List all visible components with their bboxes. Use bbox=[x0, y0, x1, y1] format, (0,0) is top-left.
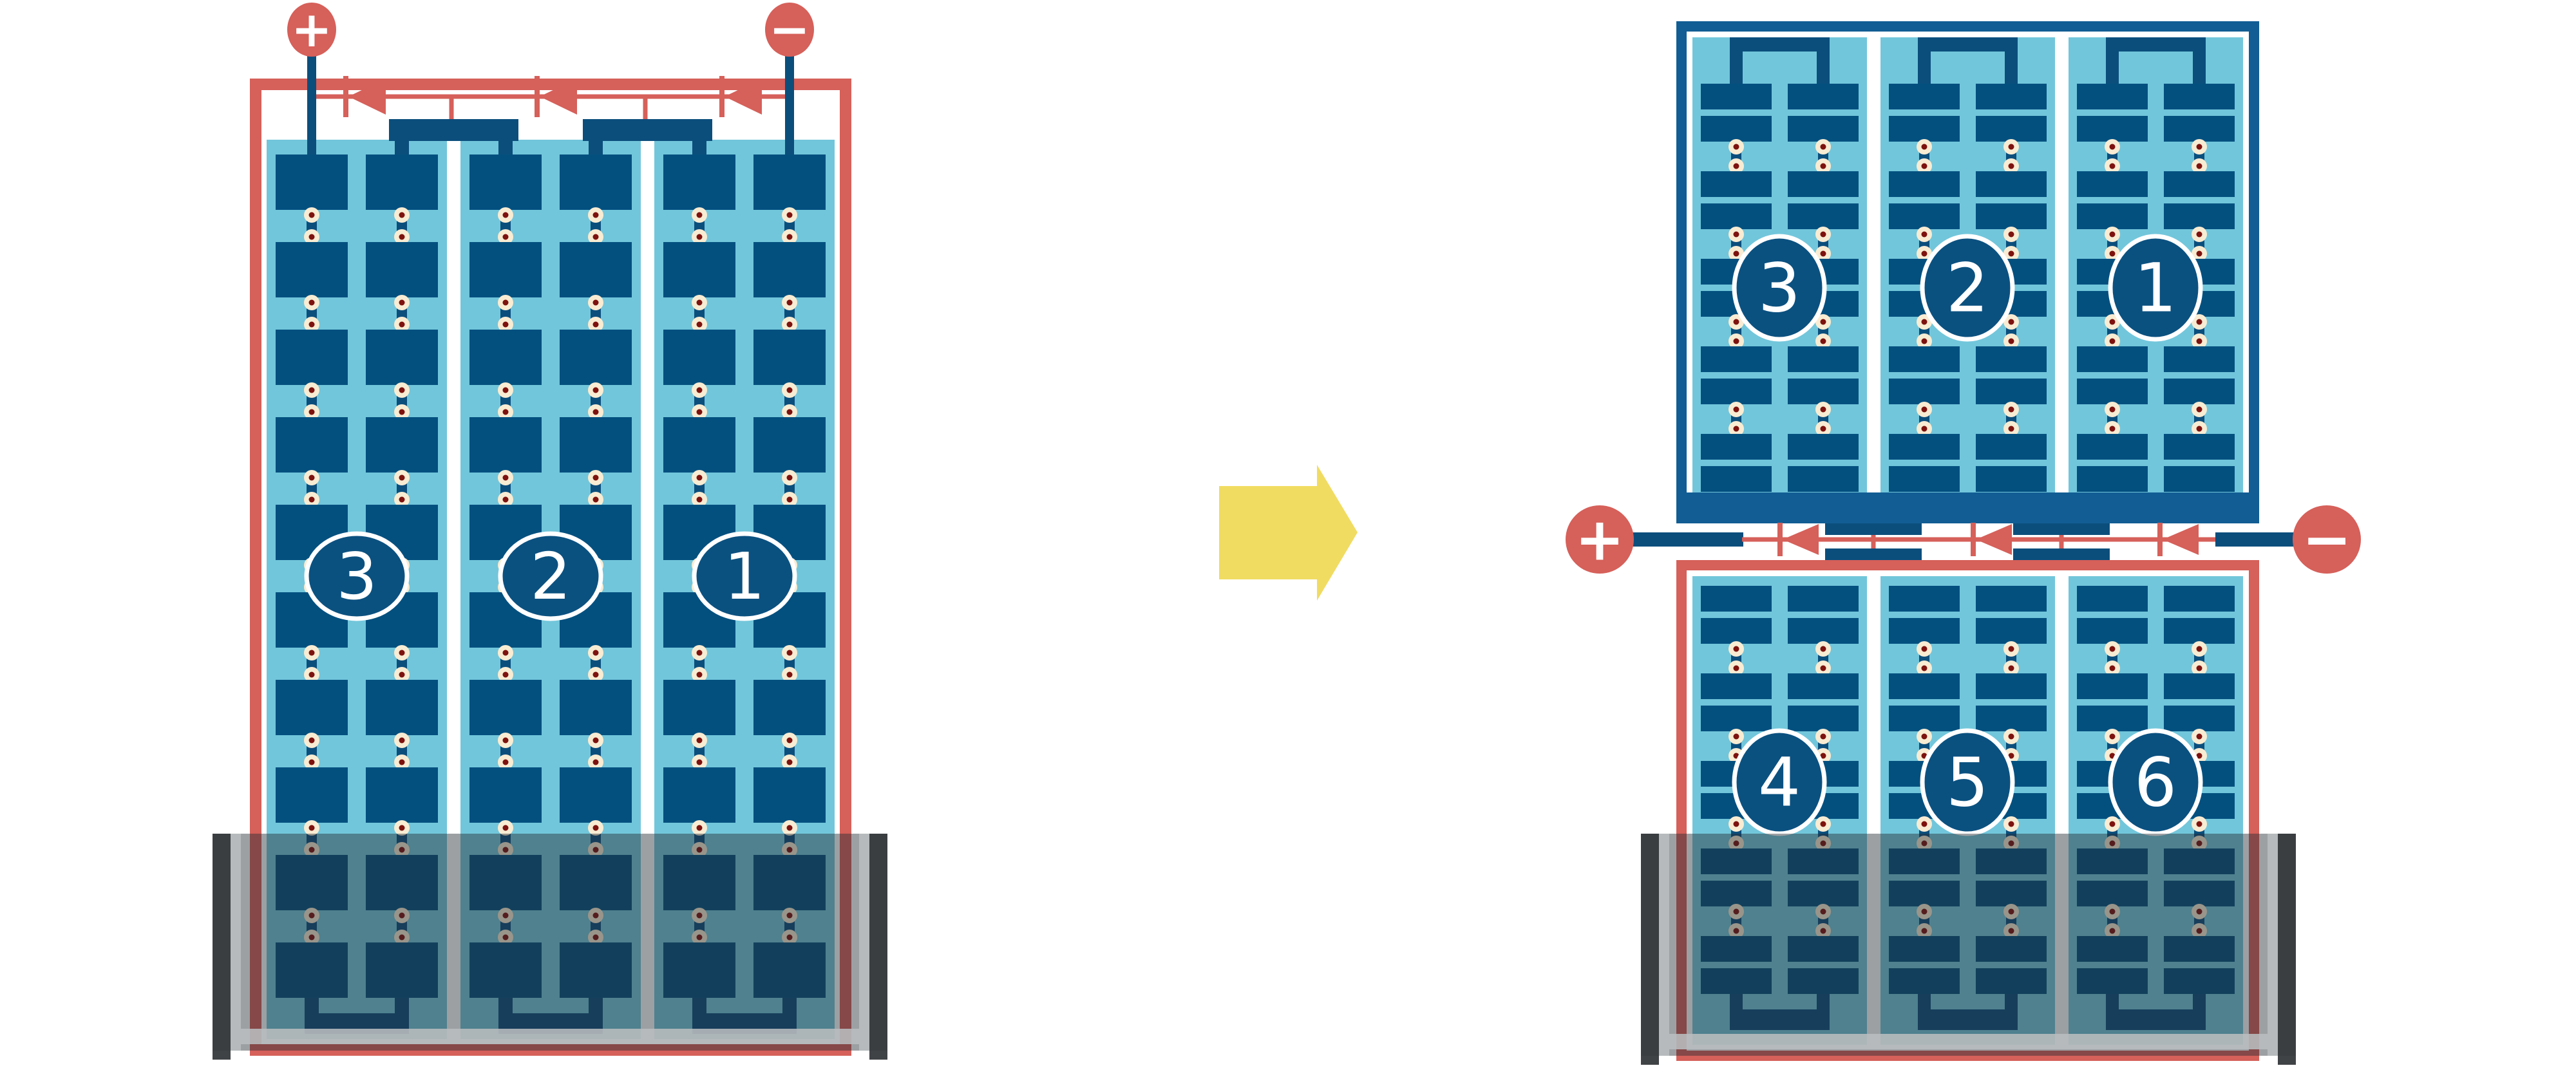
solder-dot-core bbox=[787, 738, 793, 744]
interconnect-leg bbox=[2106, 52, 2119, 86]
solder-dot-core bbox=[1922, 821, 1927, 827]
solder-dot-core bbox=[1734, 144, 1739, 150]
half-cell bbox=[2164, 618, 2235, 644]
half-cell bbox=[1889, 434, 1960, 460]
frame-bottom-busbar bbox=[1676, 492, 2259, 523]
diode-cathode-bar bbox=[719, 76, 724, 117]
bypass-diode bbox=[1971, 523, 2012, 556]
solder-dot-core bbox=[697, 650, 703, 656]
solder-dot-core bbox=[787, 650, 793, 656]
string-label-circle: 6 bbox=[2110, 731, 2201, 834]
half-cell bbox=[1976, 706, 2047, 731]
shade-rail-bottom bbox=[1669, 1034, 2268, 1049]
diode-cathode-bar bbox=[1971, 523, 1976, 556]
frame-right bbox=[2249, 21, 2259, 523]
solder-dot-core bbox=[2110, 232, 2116, 238]
half-cell bbox=[1788, 379, 1859, 404]
string-label: 2 bbox=[530, 539, 571, 614]
solder-dot-core bbox=[787, 234, 793, 240]
cell bbox=[753, 680, 826, 735]
solder-dot-core bbox=[309, 497, 315, 503]
solder-dot-core bbox=[787, 825, 793, 831]
solder-dot-core bbox=[787, 212, 793, 218]
half-cell bbox=[2164, 586, 2235, 612]
solder-dot-core bbox=[1922, 734, 1927, 740]
solder-dot-core bbox=[593, 212, 599, 218]
half-cell bbox=[2077, 203, 2148, 229]
solder-dot-core bbox=[1922, 251, 1927, 257]
solder-dot-core bbox=[2009, 666, 2014, 671]
solder-dot-core bbox=[399, 475, 405, 481]
solder-dot-core bbox=[399, 760, 405, 765]
terminal-wire bbox=[1633, 532, 1743, 547]
solder-dot-core bbox=[1821, 339, 1826, 344]
half-cell bbox=[2164, 116, 2235, 142]
cell bbox=[663, 417, 735, 473]
solder-dot-core bbox=[1734, 407, 1739, 413]
solder-dot-core bbox=[593, 300, 599, 306]
half-cell bbox=[1976, 618, 2047, 644]
solder-dot-core bbox=[2009, 646, 2014, 652]
solder-dot-core bbox=[1821, 821, 1826, 827]
cell bbox=[663, 767, 735, 823]
shade-cap-left bbox=[213, 834, 231, 1060]
cell bbox=[366, 242, 438, 297]
cell bbox=[560, 155, 632, 210]
solder-dot-core bbox=[697, 212, 703, 218]
cell bbox=[560, 767, 632, 823]
half-cell bbox=[1889, 466, 1960, 492]
solder-dot-core bbox=[2110, 821, 2116, 827]
solder-dot-core bbox=[697, 475, 703, 481]
solder-dot-core bbox=[593, 497, 599, 503]
shade-cap-right bbox=[869, 834, 887, 1060]
half-cell bbox=[1788, 346, 1859, 372]
junction-tab-top bbox=[1825, 523, 1922, 535]
cell bbox=[469, 330, 542, 385]
right-module: 321+−456 bbox=[1566, 21, 2361, 1065]
solder-dot-core bbox=[1734, 232, 1739, 238]
string-label-circle: 4 bbox=[1734, 731, 1824, 834]
half-cell bbox=[2077, 379, 2148, 404]
solder-dot-core bbox=[309, 672, 315, 678]
half-cell bbox=[1701, 434, 1772, 460]
cell bbox=[663, 242, 735, 297]
half-cell bbox=[1701, 203, 1772, 229]
half-cell bbox=[2077, 466, 2148, 492]
cell bbox=[469, 417, 542, 473]
half-cell bbox=[1889, 171, 1960, 197]
solder-dot-core bbox=[2110, 339, 2116, 344]
half-cell bbox=[1701, 706, 1772, 731]
string-label-circle: 2 bbox=[1922, 236, 2012, 339]
solder-dot-core bbox=[2197, 646, 2202, 652]
half-cell bbox=[1976, 586, 2047, 612]
interconnect-bar bbox=[389, 119, 518, 141]
frame-top bbox=[1676, 560, 2259, 570]
solder-dot-core bbox=[1734, 666, 1739, 671]
solder-dot-core bbox=[399, 300, 405, 306]
solder-dot-core bbox=[2009, 407, 2014, 413]
terminal: + bbox=[1566, 505, 1634, 574]
solder-dot-core bbox=[1922, 144, 1927, 150]
solder-dot-core bbox=[1734, 821, 1739, 827]
string-separator bbox=[1867, 37, 1880, 492]
half-cell bbox=[1976, 203, 2047, 229]
solder-dot-core bbox=[2110, 407, 2116, 413]
cell bbox=[560, 417, 632, 473]
diode-arrow bbox=[1976, 524, 2012, 555]
solder-dot-core bbox=[2197, 407, 2202, 413]
half-cell bbox=[1701, 171, 1772, 197]
solder-dot-core bbox=[1821, 251, 1826, 257]
terminal-sign: + bbox=[291, 1, 332, 58]
solder-dot-core bbox=[399, 322, 405, 328]
diode-cathode-bar bbox=[343, 76, 348, 117]
solder-dot-core bbox=[2197, 734, 2202, 740]
solder-dot-core bbox=[1922, 666, 1927, 671]
half-cell bbox=[2164, 706, 2235, 731]
cell bbox=[276, 417, 348, 473]
half-cell bbox=[1889, 673, 1960, 699]
half-cell bbox=[1889, 203, 1960, 229]
half-cell bbox=[1701, 586, 1772, 612]
shade-rail-right bbox=[2268, 834, 2278, 1056]
solder-dot-core bbox=[1821, 646, 1826, 652]
cell bbox=[469, 155, 542, 210]
solder-dot-core bbox=[593, 825, 599, 831]
cell bbox=[276, 330, 348, 385]
half-cell bbox=[2164, 84, 2235, 109]
half-cell bbox=[1976, 379, 2047, 404]
diode-line-stub bbox=[450, 97, 454, 120]
solder-dot-core bbox=[1922, 164, 1927, 169]
terminal-sign: − bbox=[769, 1, 810, 58]
solder-dot-core bbox=[503, 212, 509, 218]
terminal: − bbox=[765, 1, 814, 58]
half-cell bbox=[2077, 84, 2148, 109]
cell bbox=[753, 417, 826, 473]
interconnect-leg bbox=[1918, 52, 1931, 86]
half-cell bbox=[1701, 379, 1772, 404]
terminal-wire bbox=[2215, 532, 2294, 547]
cell bbox=[366, 767, 438, 823]
solder-dot-core bbox=[1922, 407, 1927, 413]
cell bbox=[366, 330, 438, 385]
shade-glass bbox=[1641, 834, 2296, 1056]
solder-dot-core bbox=[309, 212, 315, 218]
half-cell bbox=[2164, 673, 2235, 699]
interconnect-leg bbox=[2193, 52, 2206, 86]
interconnect-leg bbox=[2005, 52, 2018, 86]
half-cell bbox=[1701, 618, 1772, 644]
solder-dot-core bbox=[2009, 821, 2014, 827]
diagram-canvas: 321+−321+−456 bbox=[0, 0, 2576, 1068]
interconnect-leg bbox=[1817, 52, 1830, 86]
solder-dot-core bbox=[787, 475, 793, 481]
half-cell bbox=[1889, 116, 1960, 142]
shade-rail-right bbox=[859, 834, 869, 1051]
solder-dot-core bbox=[593, 409, 599, 415]
solder-dot-core bbox=[399, 650, 405, 656]
half-cell bbox=[1976, 673, 2047, 699]
solder-dot-core bbox=[2197, 666, 2202, 671]
half-cell bbox=[2077, 171, 2148, 197]
bypass-diode bbox=[2157, 523, 2199, 556]
half-cell bbox=[2077, 346, 2148, 372]
cell bbox=[276, 767, 348, 823]
shade-glass bbox=[213, 834, 887, 1051]
junction-tab-top bbox=[2013, 523, 2110, 535]
diode-line-stub bbox=[643, 97, 648, 120]
half-cell bbox=[2077, 706, 2148, 731]
shade-rail-bottom bbox=[241, 1029, 859, 1044]
bypass-diode bbox=[1777, 523, 1819, 556]
solder-dot-core bbox=[503, 497, 509, 503]
half-cell bbox=[1788, 171, 1859, 197]
solder-dot-core bbox=[1734, 164, 1739, 169]
string-label: 5 bbox=[1946, 743, 1989, 821]
shade-overlay bbox=[1641, 834, 2296, 1065]
diode-cathode-bar bbox=[535, 76, 540, 117]
solder-dot-core bbox=[309, 322, 315, 328]
solder-dot-core bbox=[787, 300, 793, 306]
solder-dot-core bbox=[2009, 251, 2014, 257]
solder-dot-core bbox=[787, 760, 793, 765]
frame-left bbox=[1676, 21, 1687, 523]
terminal-sign: + bbox=[1575, 505, 1624, 574]
solder-dot-core bbox=[1734, 426, 1739, 432]
solder-dot-core bbox=[2197, 339, 2202, 344]
terminal-sign: − bbox=[2302, 505, 2351, 574]
solder-dot-core bbox=[503, 409, 509, 415]
cell bbox=[276, 680, 348, 735]
interconnect-leg bbox=[1730, 52, 1743, 86]
string-label: 2 bbox=[1946, 248, 1989, 327]
half-cell bbox=[1976, 466, 2047, 492]
half-cell bbox=[1788, 116, 1859, 142]
solder-dot-core bbox=[593, 234, 599, 240]
half-cell bbox=[1788, 586, 1859, 612]
solder-dot-core bbox=[1734, 734, 1739, 740]
solder-dot-core bbox=[309, 760, 315, 765]
half-cell bbox=[2164, 171, 2235, 197]
solder-dot-core bbox=[1734, 646, 1739, 652]
solder-dot-core bbox=[399, 212, 405, 218]
solder-dot-core bbox=[697, 388, 703, 393]
half-cell bbox=[1788, 706, 1859, 731]
string-label-circle: 3 bbox=[307, 534, 407, 619]
solder-dot-core bbox=[503, 322, 509, 328]
solder-dot-core bbox=[787, 322, 793, 328]
solder-dot-core bbox=[2110, 319, 2116, 325]
solder-dot-core bbox=[2110, 426, 2116, 432]
string-label: 1 bbox=[2134, 248, 2177, 327]
cell bbox=[560, 330, 632, 385]
solder-dot-core bbox=[697, 322, 703, 328]
interconnect-bar bbox=[1918, 37, 2018, 52]
solder-dot-core bbox=[503, 672, 509, 678]
solder-dot-core bbox=[1821, 666, 1826, 671]
half-cell bbox=[1976, 434, 2047, 460]
string-label-circle: 1 bbox=[694, 534, 795, 619]
solder-dot-core bbox=[2009, 734, 2014, 740]
string-label: 6 bbox=[2134, 743, 2177, 821]
solder-dot-core bbox=[399, 825, 405, 831]
string-separator bbox=[2055, 37, 2069, 492]
solder-dot-core bbox=[503, 234, 509, 240]
diode-cathode-bar bbox=[1777, 523, 1783, 556]
solder-dot-core bbox=[399, 738, 405, 744]
solder-dot-core bbox=[309, 475, 315, 481]
string-label-circle: 2 bbox=[500, 534, 601, 619]
half-cell bbox=[2077, 116, 2148, 142]
solder-dot-core bbox=[1734, 319, 1739, 325]
interconnect-bar bbox=[583, 119, 712, 141]
half-cell bbox=[1889, 618, 1960, 644]
solder-dot-core bbox=[1821, 164, 1826, 169]
solder-dot-core bbox=[1821, 232, 1826, 238]
solder-dot-core bbox=[503, 825, 509, 831]
solder-dot-core bbox=[1734, 251, 1739, 257]
cell bbox=[469, 242, 542, 297]
half-cell bbox=[1701, 346, 1772, 372]
solder-dot-core bbox=[697, 760, 703, 765]
interconnect-bar bbox=[1730, 37, 1830, 52]
cell bbox=[560, 680, 632, 735]
solder-dot-core bbox=[1821, 407, 1826, 413]
cell bbox=[276, 155, 348, 210]
cell bbox=[560, 242, 632, 297]
solder-dot-core bbox=[2009, 164, 2014, 169]
cell bbox=[753, 155, 826, 210]
solder-dot-core bbox=[399, 234, 405, 240]
solder-dot-core bbox=[399, 497, 405, 503]
half-cell bbox=[1889, 379, 1960, 404]
string-label-circle: 5 bbox=[1922, 731, 2012, 834]
solder-dot-core bbox=[787, 672, 793, 678]
junction-tab-bottom bbox=[1825, 548, 1922, 560]
cell bbox=[753, 330, 826, 385]
half-cell bbox=[1788, 203, 1859, 229]
solder-dot-core bbox=[309, 738, 315, 744]
string-label-circle: 3 bbox=[1734, 236, 1824, 339]
solder-dot-core bbox=[697, 234, 703, 240]
solder-dot-core bbox=[697, 497, 703, 503]
solder-dot-core bbox=[2009, 232, 2014, 238]
solder-dot-core bbox=[2110, 646, 2116, 652]
solder-dot-core bbox=[2197, 426, 2202, 432]
solder-dot-core bbox=[1821, 319, 1826, 325]
half-cell bbox=[2077, 434, 2148, 460]
terminal: − bbox=[2293, 505, 2361, 574]
half-cell bbox=[1976, 346, 2047, 372]
half-cell bbox=[1701, 673, 1772, 699]
solder-dot-core bbox=[2110, 734, 2116, 740]
solder-dot-core bbox=[309, 234, 315, 240]
transform-arrow bbox=[1219, 465, 1358, 601]
top-half-panel: 321 bbox=[1676, 21, 2259, 523]
shade-rail-left bbox=[1659, 834, 1669, 1056]
solder-dot-core bbox=[787, 388, 793, 393]
solder-dot-core bbox=[2110, 666, 2116, 671]
left-module: 321+− bbox=[213, 1, 887, 1060]
solder-dot-core bbox=[697, 738, 703, 744]
shade-cap-left bbox=[1641, 834, 1659, 1065]
string-label: 4 bbox=[1758, 743, 1801, 821]
half-cell bbox=[2164, 203, 2235, 229]
cell bbox=[366, 680, 438, 735]
half-cell bbox=[1701, 84, 1772, 109]
solder-dot-core bbox=[593, 760, 599, 765]
solder-dot-core bbox=[787, 497, 793, 503]
junction-tab-bottom bbox=[2013, 548, 2110, 560]
half-cell bbox=[1889, 84, 1960, 109]
solder-dot-core bbox=[2009, 319, 2014, 325]
cell bbox=[663, 680, 735, 735]
solder-dot-core bbox=[697, 409, 703, 415]
solder-dot-core bbox=[503, 475, 509, 481]
string-label: 3 bbox=[1758, 248, 1801, 327]
solder-dot-core bbox=[2197, 251, 2202, 257]
solder-dot-core bbox=[503, 738, 509, 744]
solder-dot-core bbox=[2197, 164, 2202, 169]
solder-dot-core bbox=[593, 738, 599, 744]
solder-dot-core bbox=[1922, 339, 1927, 344]
solder-dot-core bbox=[593, 650, 599, 656]
solder-dot-core bbox=[593, 475, 599, 481]
cell bbox=[753, 242, 826, 297]
solder-dot-core bbox=[1821, 426, 1826, 432]
solder-dot-core bbox=[309, 300, 315, 306]
half-cell bbox=[1701, 466, 1772, 492]
solder-dot-core bbox=[697, 825, 703, 831]
solder-dot-core bbox=[593, 672, 599, 678]
solder-dot-core bbox=[1922, 426, 1927, 432]
solder-dot-core bbox=[2009, 144, 2014, 150]
cell bbox=[469, 767, 542, 823]
half-cell bbox=[1976, 84, 2047, 109]
half-cut-module-diagram: 321+−321+−456 bbox=[0, 0, 2576, 1068]
solder-dot-core bbox=[787, 409, 793, 415]
solder-dot-core bbox=[503, 300, 509, 306]
terminal: + bbox=[287, 1, 336, 58]
solder-dot-core bbox=[697, 300, 703, 306]
half-cell bbox=[1788, 466, 1859, 492]
half-cell bbox=[2164, 379, 2235, 404]
solder-dot-core bbox=[2197, 319, 2202, 325]
half-cell bbox=[2077, 618, 2148, 644]
half-cell bbox=[2077, 673, 2148, 699]
shade-cap-right bbox=[2278, 834, 2296, 1065]
half-cell bbox=[1889, 346, 1960, 372]
half-cell bbox=[1788, 618, 1859, 644]
cell bbox=[663, 330, 735, 385]
half-cell bbox=[1976, 116, 2047, 142]
solder-dot-core bbox=[503, 650, 509, 656]
solder-dot-core bbox=[2110, 164, 2116, 169]
cell bbox=[469, 680, 542, 735]
solder-dot-core bbox=[503, 388, 509, 393]
cell bbox=[753, 767, 826, 823]
half-cell bbox=[2164, 346, 2235, 372]
shade-rail-left bbox=[231, 834, 241, 1051]
solder-dot-core bbox=[593, 388, 599, 393]
solder-dot-core bbox=[399, 672, 405, 678]
solder-dot-core bbox=[2110, 144, 2116, 150]
solder-dot-core bbox=[309, 388, 315, 393]
shade-overlay bbox=[213, 834, 887, 1060]
